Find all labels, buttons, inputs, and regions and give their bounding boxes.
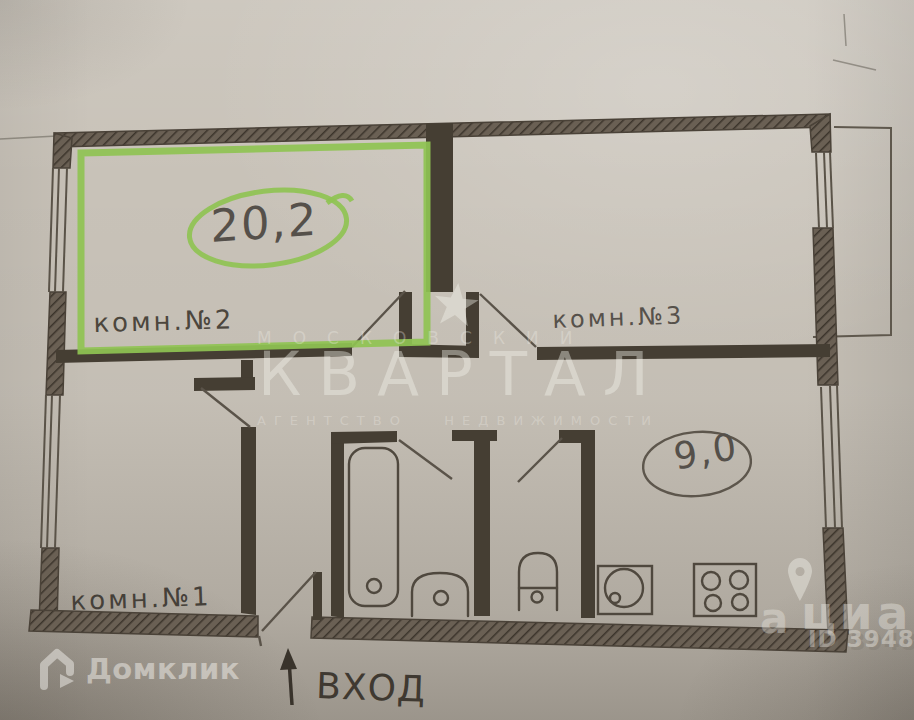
stove-burner bbox=[730, 571, 748, 589]
room1-label: комн.№1 bbox=[70, 581, 212, 616]
bathtub-drain bbox=[367, 579, 381, 593]
room2-label: комн.№2 bbox=[93, 304, 235, 338]
agency-watermark-subtitle: АГЕНТСТВО НЕДВИЖИМОСТИ bbox=[257, 413, 659, 428]
stove-burner bbox=[732, 594, 748, 610]
entrance-label: ВХОД bbox=[316, 665, 427, 710]
entrance-door bbox=[262, 572, 316, 631]
bathroom-top-wall bbox=[331, 431, 397, 444]
bathroom-sink-drain bbox=[434, 591, 448, 605]
room1-right-wall bbox=[241, 427, 256, 615]
room1-door bbox=[201, 388, 250, 427]
room2-area-value: 20,2 bbox=[210, 192, 319, 253]
star-icon bbox=[432, 281, 480, 329]
domclick-label: Домклик bbox=[86, 652, 240, 686]
bathroom-door bbox=[399, 440, 452, 479]
kitchen-sink-drain bbox=[610, 593, 620, 603]
bathtub bbox=[349, 448, 398, 606]
entrance-door-post bbox=[313, 572, 322, 620]
toilet-drain bbox=[532, 592, 543, 603]
entrance-arrow-icon bbox=[280, 648, 297, 705]
bathroom-left-wall bbox=[331, 432, 344, 618]
stove-burner bbox=[705, 595, 721, 611]
floor-plan-photo: 20,2 комн.№2 комн.№3 комн.№1 9,0 ВХОД МО… bbox=[0, 0, 914, 720]
listing-id-watermark: ID 3948 bbox=[808, 626, 914, 652]
bottom-wall-left bbox=[29, 610, 258, 637]
left-wall-segment bbox=[46, 292, 66, 395]
threshold-tick bbox=[259, 636, 261, 646]
cian-watermark-partial: а bbox=[760, 594, 788, 643]
bathroom-sink bbox=[412, 573, 468, 616]
bath-toilet-divider bbox=[474, 430, 490, 616]
green-circle-flick bbox=[327, 195, 352, 203]
stove-burner bbox=[702, 572, 720, 590]
right-wall-segment bbox=[813, 228, 838, 385]
domclick-house-icon bbox=[37, 648, 77, 690]
left-wall-segment bbox=[53, 133, 72, 168]
kitchen-left-wall bbox=[581, 430, 595, 618]
domclick-watermark: Домклик bbox=[37, 648, 240, 690]
toilet-door bbox=[518, 438, 562, 482]
room1-door-stub bbox=[241, 360, 253, 379]
agency-watermark-name: КВАРТАЛ bbox=[258, 343, 666, 404]
